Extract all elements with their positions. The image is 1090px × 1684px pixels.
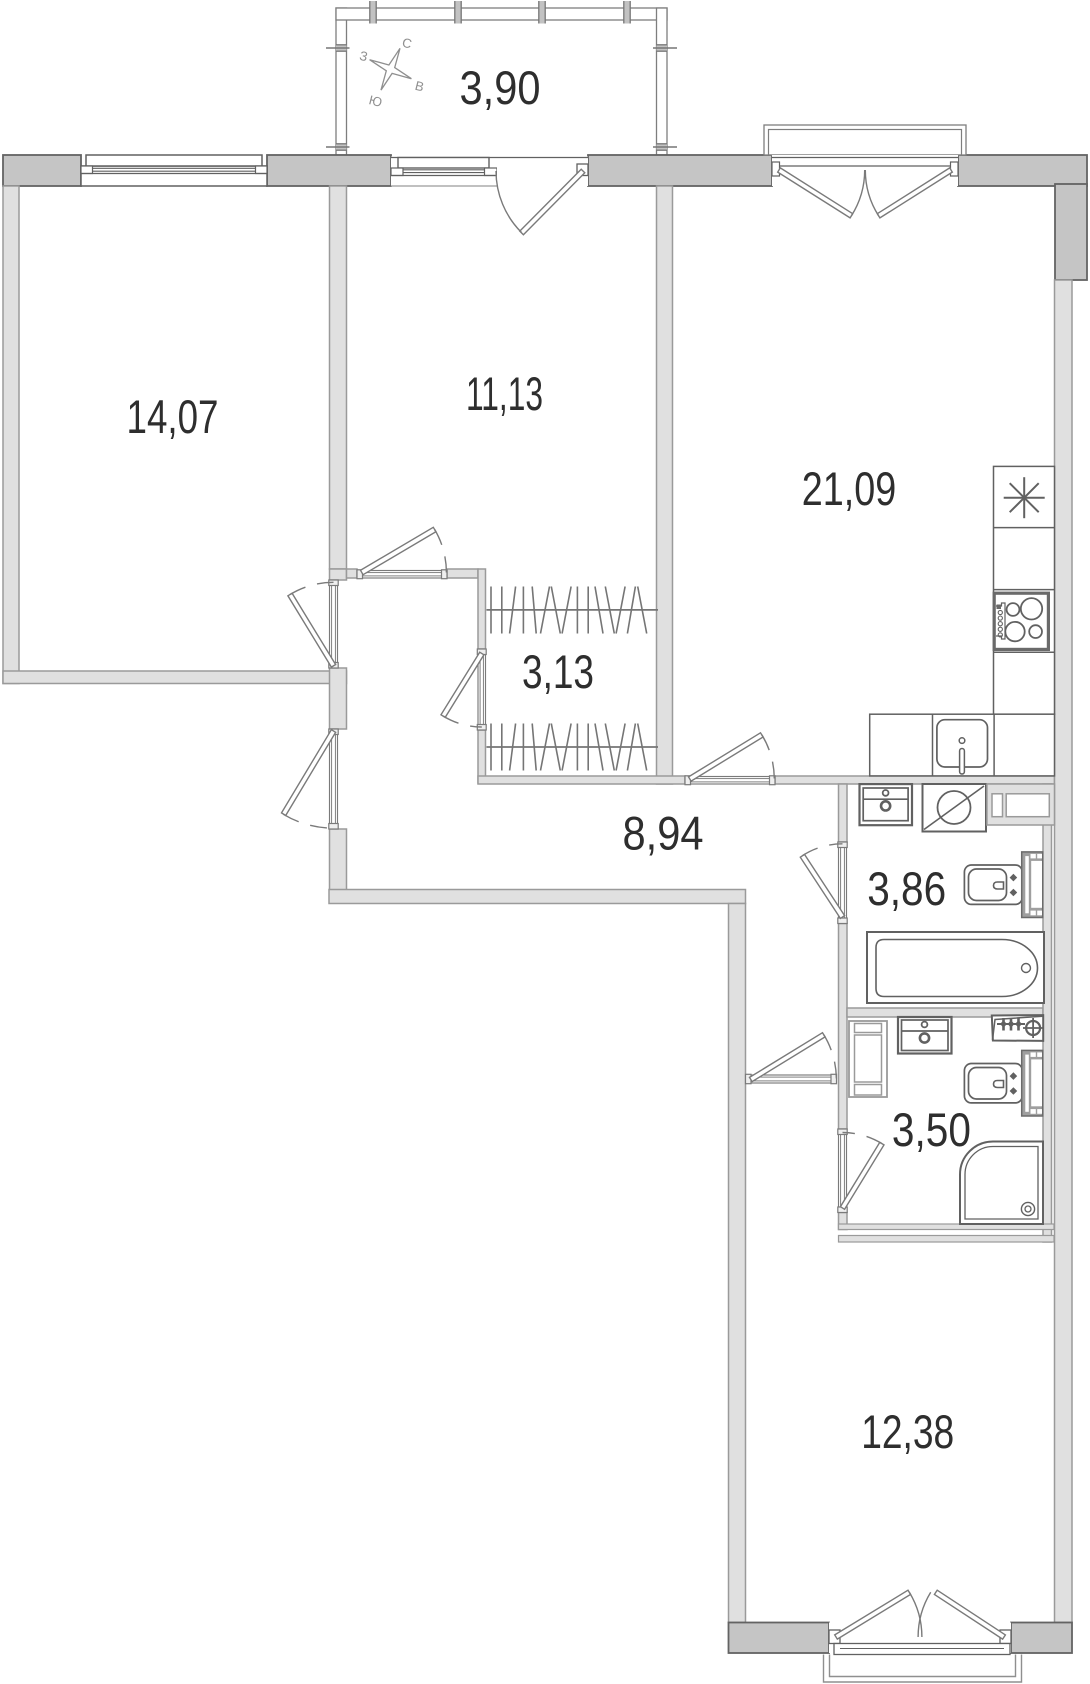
- svg-text:3,50: 3,50: [892, 1104, 971, 1157]
- svg-text:3,90: 3,90: [460, 62, 541, 115]
- svg-text:8,94: 8,94: [623, 808, 704, 861]
- svg-text:21,09: 21,09: [802, 463, 897, 516]
- svg-text:3,86: 3,86: [867, 863, 946, 916]
- svg-text:14,07: 14,07: [127, 391, 219, 444]
- svg-text:11,13: 11,13: [466, 368, 543, 421]
- svg-text:3,13: 3,13: [522, 646, 594, 699]
- svg-text:12,38: 12,38: [861, 1406, 954, 1459]
